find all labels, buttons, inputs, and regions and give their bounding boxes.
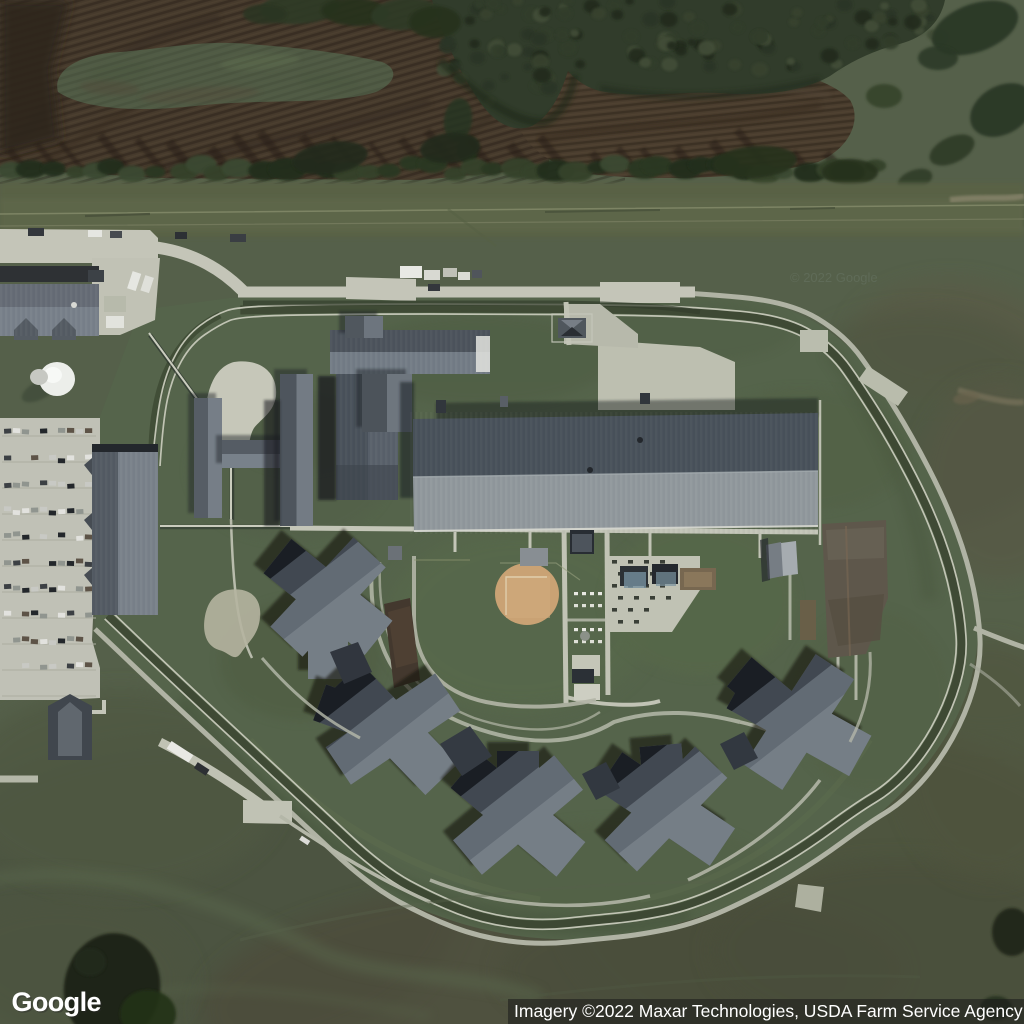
svg-text:Imagery ©2022 Maxar Technologi: Imagery ©2022 Maxar Technologies, USDA F… <box>514 1001 1023 1021</box>
svg-text:Google: Google <box>12 987 102 1017</box>
svg-text:© 2022 Google: © 2022 Google <box>790 270 878 285</box>
